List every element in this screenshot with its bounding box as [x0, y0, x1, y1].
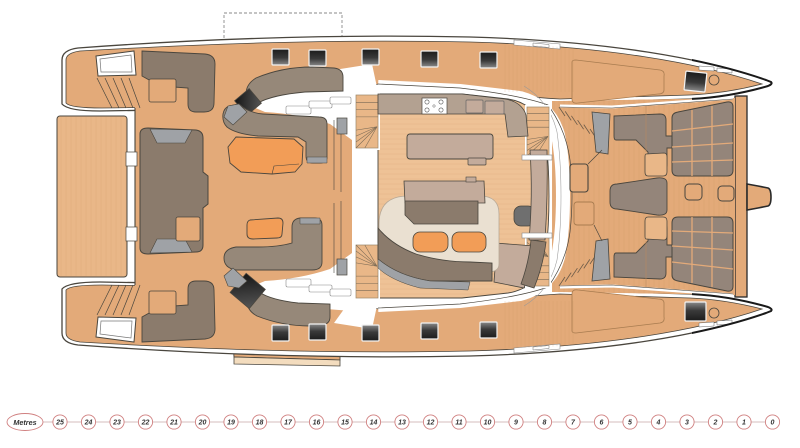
svg-text:13: 13 — [398, 420, 406, 427]
svg-text:1: 1 — [742, 420, 746, 427]
svg-text:20: 20 — [198, 420, 207, 427]
svg-text:2: 2 — [713, 420, 718, 427]
svg-text:6: 6 — [600, 420, 604, 427]
svg-text:25: 25 — [55, 420, 64, 427]
svg-text:5: 5 — [628, 420, 632, 427]
svg-text:3: 3 — [685, 420, 689, 427]
svg-text:22: 22 — [141, 420, 150, 427]
svg-text:9: 9 — [514, 420, 518, 427]
svg-text:0: 0 — [771, 420, 775, 427]
svg-text:18: 18 — [256, 420, 264, 427]
svg-text:11: 11 — [455, 420, 462, 427]
svg-text:14: 14 — [370, 420, 378, 427]
svg-text:23: 23 — [112, 420, 121, 427]
svg-text:Metres: Metres — [13, 418, 36, 427]
svg-text:10: 10 — [484, 420, 492, 427]
svg-text:24: 24 — [84, 420, 93, 427]
svg-text:15: 15 — [341, 420, 349, 427]
svg-text:16: 16 — [313, 420, 321, 427]
svg-text:8: 8 — [543, 420, 547, 427]
svg-text:17: 17 — [284, 420, 293, 427]
svg-text:12: 12 — [427, 420, 435, 427]
svg-text:4: 4 — [656, 420, 661, 427]
svg-text:21: 21 — [169, 420, 178, 427]
svg-text:19: 19 — [227, 420, 235, 427]
